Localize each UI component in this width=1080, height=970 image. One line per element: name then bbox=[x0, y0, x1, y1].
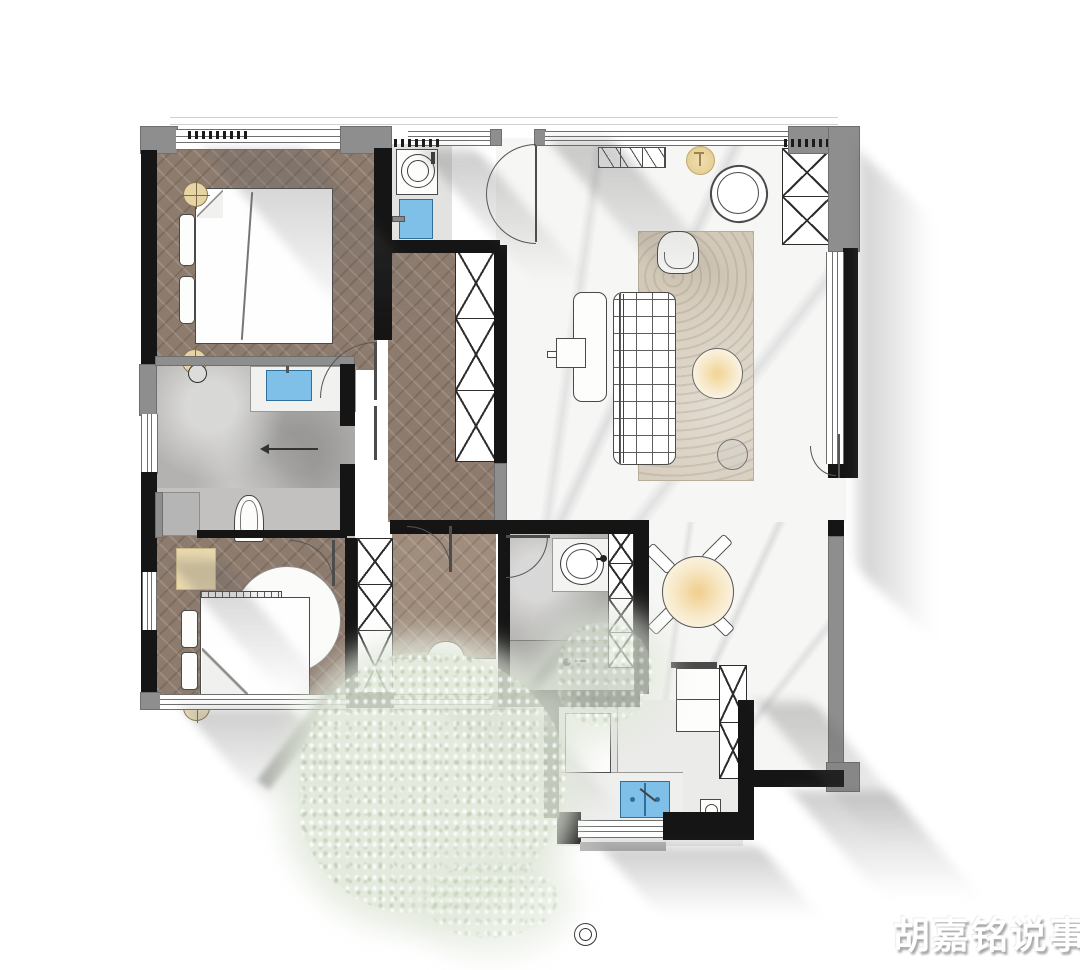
gas-stove bbox=[565, 713, 611, 773]
tv-tab bbox=[547, 351, 557, 358]
shower-valve-icon bbox=[575, 660, 587, 662]
wardrobe-cell bbox=[609, 564, 633, 599]
cast-shadow bbox=[182, 708, 388, 823]
dining-table bbox=[662, 556, 734, 628]
building-outline-line bbox=[170, 124, 838, 125]
door-leaf bbox=[332, 540, 335, 586]
fan-chair-inner-arc-icon bbox=[717, 172, 759, 214]
window bbox=[545, 131, 789, 146]
towel-rail-arrow-icon bbox=[260, 444, 269, 454]
insulation-ticks-icon bbox=[784, 139, 830, 147]
door-post bbox=[490, 129, 502, 146]
wall bbox=[390, 240, 500, 253]
shower-head-icon bbox=[188, 364, 207, 383]
wall bbox=[634, 520, 649, 694]
door-leaf bbox=[374, 406, 377, 460]
column bbox=[140, 692, 162, 710]
sofa-armrest-line bbox=[619, 294, 624, 463]
floor-drain-icon bbox=[563, 658, 571, 666]
cast-shadow bbox=[600, 846, 827, 926]
wardrobe-cell bbox=[609, 529, 633, 564]
building-outline-line bbox=[170, 117, 838, 118]
wall bbox=[746, 770, 844, 787]
wardrobe-cell bbox=[456, 391, 496, 461]
round-sink-inner-icon bbox=[566, 549, 598, 579]
curtain-rod-icon bbox=[838, 434, 840, 478]
door-leaf bbox=[449, 526, 452, 572]
wall bbox=[498, 520, 636, 534]
window bbox=[394, 694, 496, 710]
sink-drain-icon bbox=[630, 797, 635, 802]
cast-shadow bbox=[858, 150, 940, 644]
window-sill bbox=[580, 842, 666, 851]
wall-gray bbox=[155, 492, 163, 538]
wardrobe-cell bbox=[783, 149, 831, 197]
wardrobe-cell bbox=[358, 539, 392, 585]
living-wardrobe bbox=[782, 148, 832, 245]
towel-rail-icon bbox=[266, 448, 318, 450]
window bbox=[160, 694, 346, 710]
wall bbox=[197, 530, 347, 538]
wardrobe-cell bbox=[609, 633, 633, 667]
door-leaf bbox=[506, 535, 550, 538]
entry-door-arc-icon bbox=[486, 194, 536, 244]
sink-faucet-icon bbox=[600, 555, 607, 562]
bedroom2-wardrobe bbox=[357, 538, 393, 704]
wall bbox=[544, 700, 559, 818]
duvet-corner-fold bbox=[202, 648, 248, 694]
stool-mark-icon bbox=[699, 152, 701, 166]
door-leaf bbox=[374, 342, 377, 400]
sink-faucet-icon bbox=[286, 365, 289, 373]
window bbox=[826, 252, 844, 464]
wall bbox=[141, 150, 157, 368]
bathroom-sink bbox=[266, 370, 312, 401]
wardrobe-cell bbox=[456, 319, 496, 390]
shower-zone bbox=[508, 640, 608, 693]
washer-panel-icon bbox=[431, 152, 435, 164]
bathroom2-linen-cabinet bbox=[608, 528, 634, 668]
lamp-table bbox=[176, 548, 216, 590]
entry-door-leaf bbox=[535, 146, 537, 242]
bedside-lamp-icon bbox=[183, 182, 208, 207]
window bbox=[578, 820, 666, 838]
wardrobe-cell bbox=[358, 585, 392, 631]
wall bbox=[663, 812, 754, 840]
window bbox=[141, 414, 158, 474]
kitchen-sink-divider bbox=[644, 783, 646, 816]
hall-wardrobe bbox=[455, 247, 497, 462]
wall-gray bbox=[155, 356, 355, 366]
wall bbox=[345, 538, 357, 706]
wall bbox=[345, 692, 395, 708]
wall bbox=[340, 464, 355, 536]
laundry-faucet-icon bbox=[392, 216, 405, 222]
column bbox=[139, 364, 157, 416]
corner-wall bbox=[828, 126, 860, 252]
insulation-ticks-icon bbox=[394, 139, 440, 147]
wardrobe-cell bbox=[783, 197, 831, 244]
cast-shadow bbox=[790, 790, 991, 910]
entry-door-arc-icon bbox=[486, 144, 536, 194]
insulation-ticks-icon bbox=[188, 131, 248, 139]
wall bbox=[738, 700, 754, 816]
window bbox=[142, 572, 157, 630]
wardrobe-cell bbox=[609, 599, 633, 634]
wall bbox=[843, 248, 858, 472]
coffee-table bbox=[692, 348, 743, 399]
wall bbox=[498, 690, 640, 707]
round-stool bbox=[686, 146, 715, 175]
headboard-cushion bbox=[179, 214, 195, 266]
wall-gray bbox=[494, 463, 507, 523]
wall bbox=[494, 245, 507, 463]
tree-foliage bbox=[428, 862, 558, 938]
washer-drum-inner-icon bbox=[407, 160, 429, 182]
side-table bbox=[717, 439, 748, 470]
shoe-cabinet bbox=[598, 147, 666, 168]
headboard-cushion bbox=[181, 610, 198, 648]
headboard-cushion bbox=[181, 652, 198, 690]
watermark-text: 胡嘉铭说事 bbox=[893, 905, 1080, 959]
stove-burner-icon bbox=[574, 923, 597, 946]
balcony-wall bbox=[828, 536, 844, 772]
headboard-cushion bbox=[179, 276, 195, 324]
floor-plan-canvas: 胡嘉铭说事 bbox=[0, 0, 1080, 970]
closet-side-cabinet bbox=[158, 492, 200, 536]
tv-square bbox=[556, 338, 586, 368]
wardrobe-cell bbox=[456, 248, 496, 319]
